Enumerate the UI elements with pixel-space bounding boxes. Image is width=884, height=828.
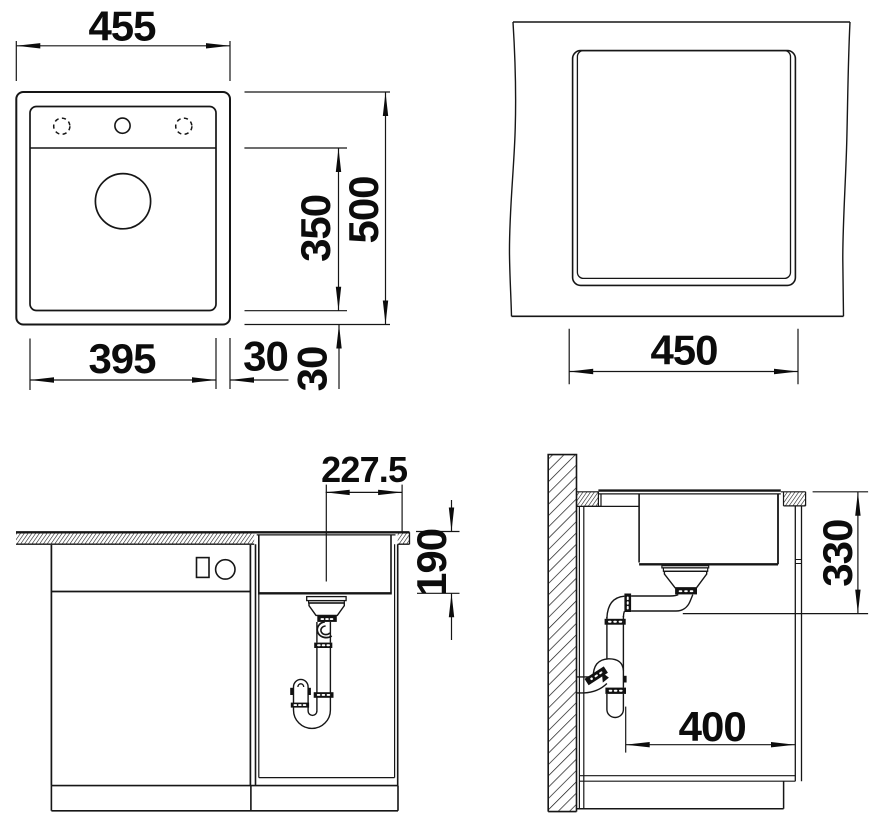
svg-text:455: 455 [88, 3, 156, 50]
svg-text:227.5: 227.5 [321, 449, 408, 490]
svg-text:330: 330 [814, 520, 861, 587]
svg-text:30: 30 [289, 347, 336, 392]
svg-text:395: 395 [88, 335, 156, 382]
svg-text:190: 190 [408, 529, 455, 596]
svg-text:400: 400 [679, 703, 746, 750]
svg-text:450: 450 [650, 327, 717, 374]
svg-text:350: 350 [292, 195, 339, 262]
svg-text:500: 500 [340, 176, 387, 243]
svg-text:30: 30 [243, 333, 288, 380]
